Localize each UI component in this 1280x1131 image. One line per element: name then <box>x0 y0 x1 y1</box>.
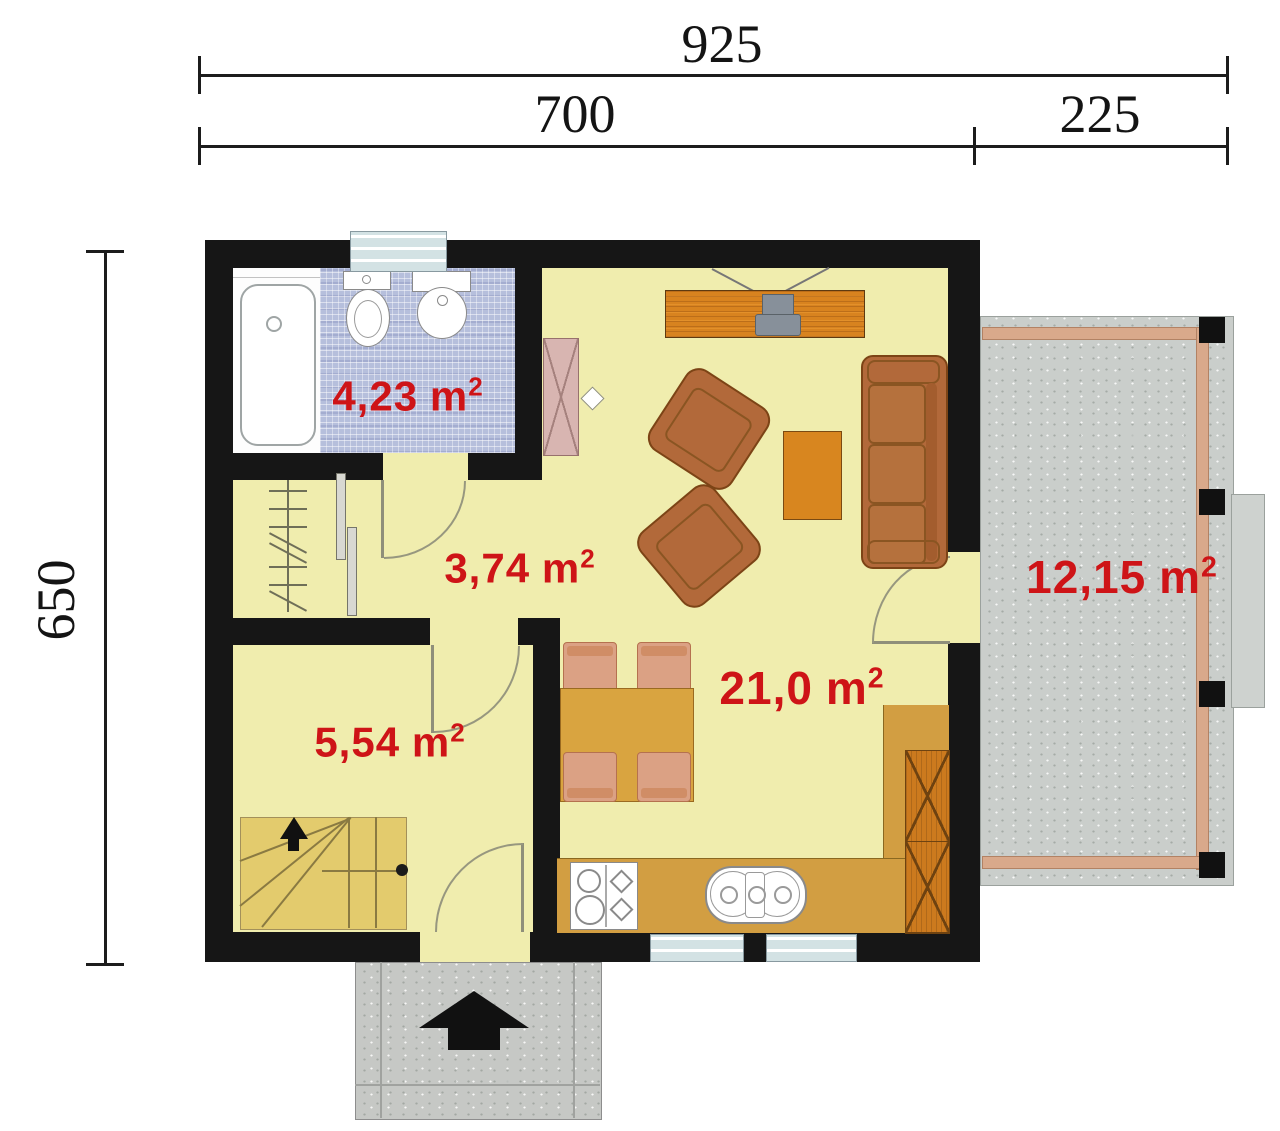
stair-tread-line <box>348 817 350 928</box>
dim-label-house-depth: 650 <box>25 560 87 641</box>
tv-base <box>755 314 801 336</box>
stair-walk-line-dot <box>396 864 408 876</box>
terrace-post <box>1199 852 1225 878</box>
terrace-edge-beam-bottom <box>982 856 1209 869</box>
stair-up-arrow-icon <box>280 817 308 839</box>
wall-top <box>205 240 980 268</box>
toilet-tank-button <box>362 275 371 284</box>
terrace-post <box>1199 681 1225 707</box>
stair-tread-line <box>375 817 377 928</box>
stove <box>570 862 638 930</box>
area-unit: m <box>430 373 468 420</box>
area-exponent: 2 <box>580 544 595 574</box>
stove-divider <box>605 865 607 927</box>
porch-step-line <box>355 1084 600 1086</box>
radiator-symbol <box>287 480 289 612</box>
armchair-seat <box>662 385 754 475</box>
stove-burner-cross <box>609 869 633 893</box>
entrance-door-opening <box>420 932 530 962</box>
area-value: 3,74 <box>444 545 530 592</box>
stove-burner-cross <box>609 897 633 921</box>
floor-plan: 925 700 225 650 <box>0 0 1280 1131</box>
dim-tick <box>86 963 124 966</box>
terrace-door-opening <box>948 552 980 643</box>
radiator-tick <box>269 584 307 586</box>
area-label-bathroom: 4,23m2 <box>332 372 483 421</box>
dining-chair <box>637 752 691 802</box>
radiator-tick <box>269 508 307 510</box>
wall-bathroom-bottom-left <box>233 453 383 480</box>
bathtub-shelf-line <box>233 277 320 278</box>
bathroom-window <box>350 231 447 272</box>
wall-bathroom-bottom-right <box>468 453 542 480</box>
dim-line-house-terrace-width <box>200 145 1228 148</box>
dim-label-terrace-width: 225 <box>1060 83 1141 145</box>
dining-chair <box>637 642 691 692</box>
stove-burner <box>577 869 601 893</box>
area-label-stair-room: 5,54m2 <box>314 718 465 767</box>
dining-chair <box>563 752 617 802</box>
wall-room-kitchen-divider <box>533 645 560 932</box>
area-exponent: 2 <box>1201 552 1218 584</box>
chair-backrest <box>641 646 687 656</box>
dim-line-house-depth <box>104 252 107 966</box>
porch-edge-line <box>380 962 382 1118</box>
area-unit: m <box>1159 551 1201 603</box>
dim-tick <box>198 56 201 94</box>
dim-tick <box>1226 127 1229 165</box>
coffee-table <box>783 431 842 520</box>
sink-drain <box>774 886 792 904</box>
dim-tick <box>1226 56 1229 94</box>
kitchen-window-left <box>650 934 744 962</box>
bathtub-drain <box>266 316 282 332</box>
kitchen-sink <box>705 866 807 924</box>
bathroom-tile-floor <box>320 268 515 453</box>
area-label-living-kitchen: 21,0m2 <box>719 661 884 715</box>
sofa-cushion <box>868 384 926 444</box>
toilet-seat <box>354 300 382 338</box>
sofa-backrest <box>926 383 937 561</box>
cabinet-door-x <box>906 751 949 842</box>
hall-wardrobe <box>543 338 579 456</box>
radiator-tick <box>269 566 307 568</box>
sink-drain <box>748 886 766 904</box>
porch-edge-line <box>573 962 575 1118</box>
dim-tick <box>86 250 124 253</box>
area-exponent: 2 <box>868 663 885 695</box>
area-value: 4,23 <box>332 373 418 420</box>
staircase <box>240 817 407 930</box>
sofa-cushion <box>868 444 926 504</box>
terrace-side-landing <box>1231 494 1265 708</box>
sliding-door-panel <box>336 473 346 560</box>
area-exponent: 2 <box>450 718 465 748</box>
wall-bathroom-right <box>515 240 542 480</box>
dim-label-overall-width: 925 <box>682 13 763 75</box>
sofa-armrest <box>867 540 940 564</box>
area-value: 12,15 <box>1026 551 1146 603</box>
sliding-door-panel <box>347 527 357 616</box>
armchair-seat <box>653 501 746 593</box>
bathtub <box>240 284 316 446</box>
area-value: 5,54 <box>314 719 400 766</box>
dim-label-house-width: 700 <box>535 83 616 145</box>
radiator-tick <box>269 526 307 528</box>
terrace-post <box>1199 317 1225 343</box>
stair-up-arrow-stem <box>288 839 299 851</box>
radiator-tick <box>269 490 307 492</box>
chair-backrest <box>567 788 613 798</box>
chair-backrest <box>567 646 613 656</box>
wall-left <box>205 240 233 962</box>
area-exponent: 2 <box>468 372 483 402</box>
dining-chair <box>563 642 617 692</box>
entrance-arrow-stem <box>448 1028 500 1050</box>
sofa <box>861 355 948 569</box>
kitchen-window-right <box>766 934 857 962</box>
area-unit: m <box>542 545 580 592</box>
area-label-terrace: 12,15m2 <box>1026 550 1218 604</box>
wall-bottom <box>205 932 980 962</box>
chair-backrest <box>641 788 687 798</box>
entrance-arrow-icon <box>419 991 529 1028</box>
area-value: 21,0 <box>719 662 813 714</box>
area-unit: m <box>412 719 450 766</box>
area-unit: m <box>826 662 868 714</box>
sink-drain <box>720 886 738 904</box>
area-label-hallway: 3,74m2 <box>444 544 595 593</box>
dim-tick <box>198 127 201 165</box>
stove-burner <box>575 895 605 925</box>
kitchen-tall-cabinet <box>905 750 950 934</box>
wall-corner-block <box>518 618 560 645</box>
terrace-edge-beam-top <box>982 327 1206 340</box>
cabinet-door-x <box>906 842 949 933</box>
stair-walk-line <box>322 870 402 872</box>
dim-tick <box>973 127 976 165</box>
terrace-post <box>1199 489 1225 515</box>
wall-hall-room-divider <box>233 618 430 645</box>
sofa-armrest <box>867 360 940 384</box>
washbasin-drain <box>437 295 448 306</box>
